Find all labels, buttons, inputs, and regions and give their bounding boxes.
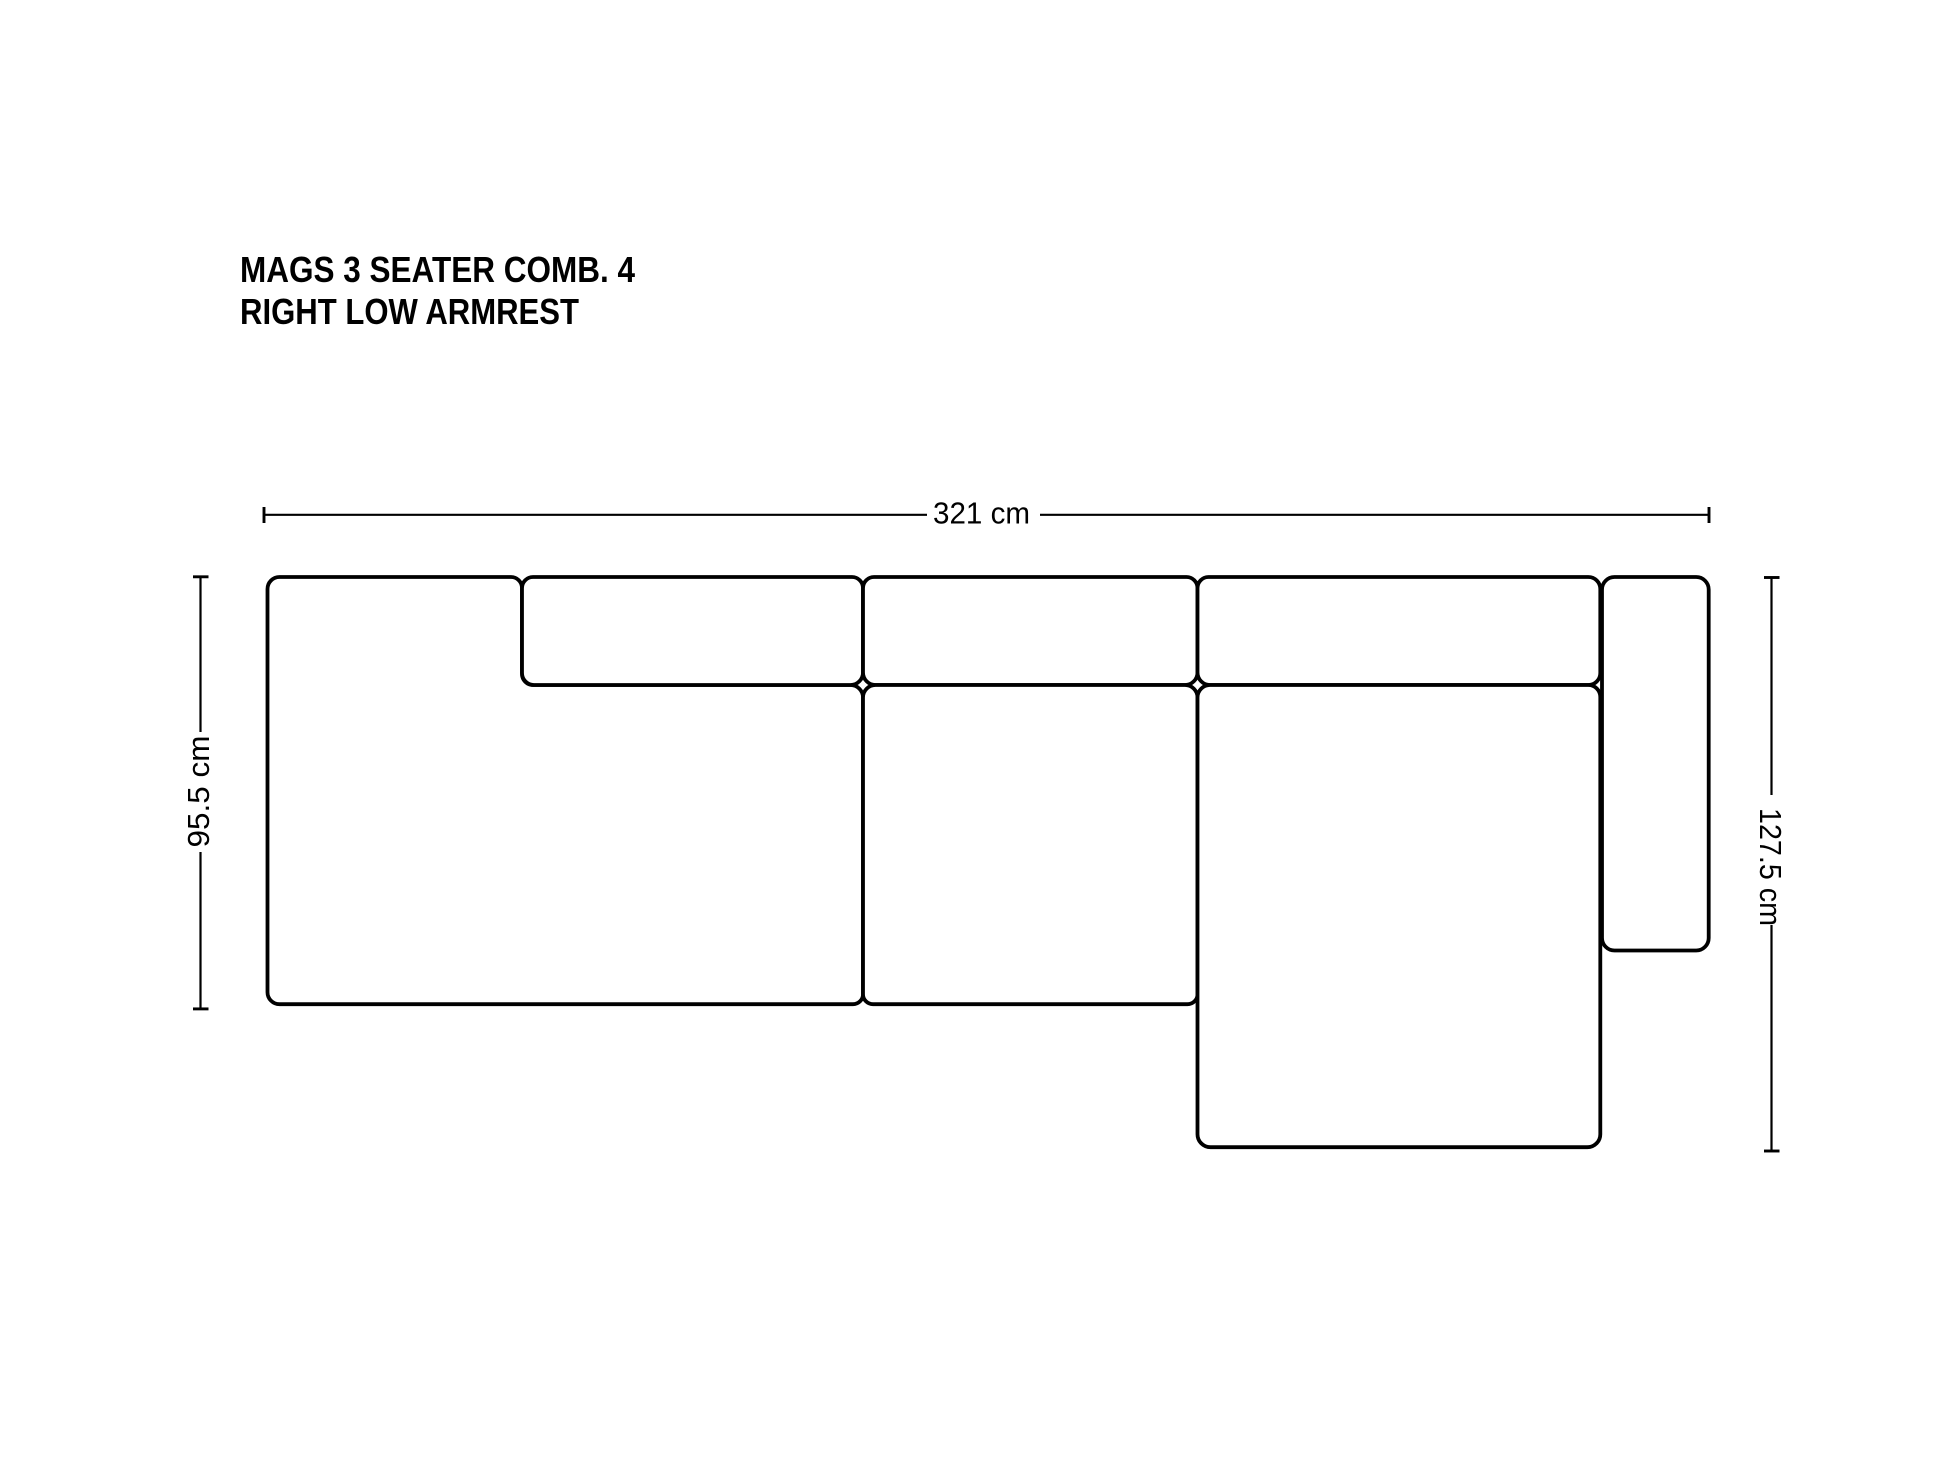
svg-text:RIGHT LOW ARMREST: RIGHT LOW ARMREST <box>240 291 579 332</box>
svg-text:127.5 cm: 127.5 cm <box>1753 808 1787 926</box>
svg-text:321 cm: 321 cm <box>933 497 1030 531</box>
svg-text:95.5 cm: 95.5 cm <box>182 736 216 848</box>
svg-text:MAGS 3 SEATER COMB. 4: MAGS 3 SEATER COMB. 4 <box>240 249 635 290</box>
